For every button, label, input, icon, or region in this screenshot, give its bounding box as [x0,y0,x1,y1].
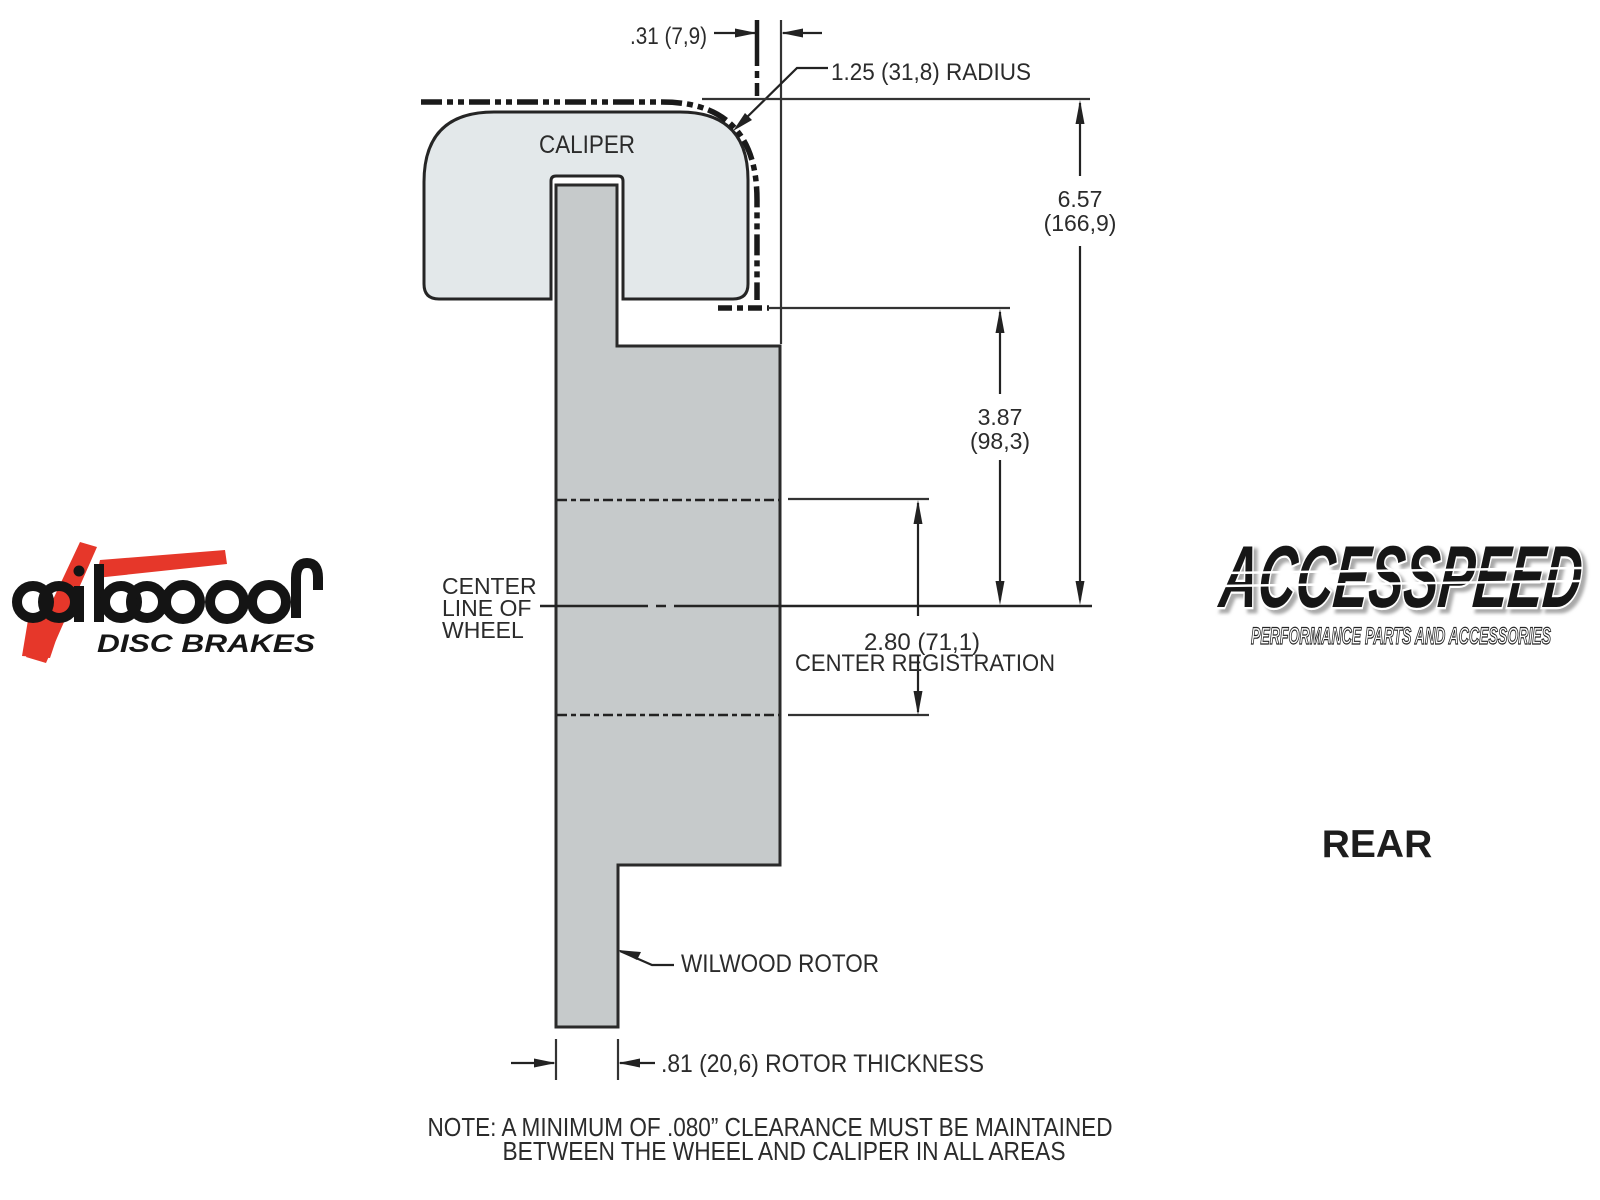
svg-text:1.25 (31,8) RADIUS: 1.25 (31,8) RADIUS [831,59,1031,86]
svg-text:CALIPER: CALIPER [539,131,635,159]
svg-text:.81 (20,6) ROTOR THICKNESS: .81 (20,6) ROTOR THICKNESS [661,1050,984,1078]
svg-text:CENTER REGISTRATION: CENTER REGISTRATION [795,650,1055,677]
svg-text:REAR: REAR [1322,823,1433,866]
svg-text:6.57: 6.57 [1058,186,1103,212]
svg-text:WILWOOD ROTOR: WILWOOD ROTOR [681,950,879,978]
svg-text:WHEEL: WHEEL [442,617,524,643]
svg-text:PERFORMANCE PARTS AND ACCESSOR: PERFORMANCE PARTS AND ACCESSORIES [1251,623,1551,650]
svg-text:.31 (7,9): .31 (7,9) [630,23,707,50]
svg-text:DISC BRAKES: DISC BRAKES [97,630,315,658]
svg-text:3.87: 3.87 [978,404,1023,430]
svg-text:(98,3): (98,3) [970,428,1030,454]
svg-text:ACCESSPEED: ACCESSPEED [1215,527,1588,626]
svg-text:(166,9): (166,9) [1044,210,1117,236]
svg-text:BETWEEN THE WHEEL AND CALIPER: BETWEEN THE WHEEL AND CALIPER IN ALL ARE… [503,1136,1066,1166]
